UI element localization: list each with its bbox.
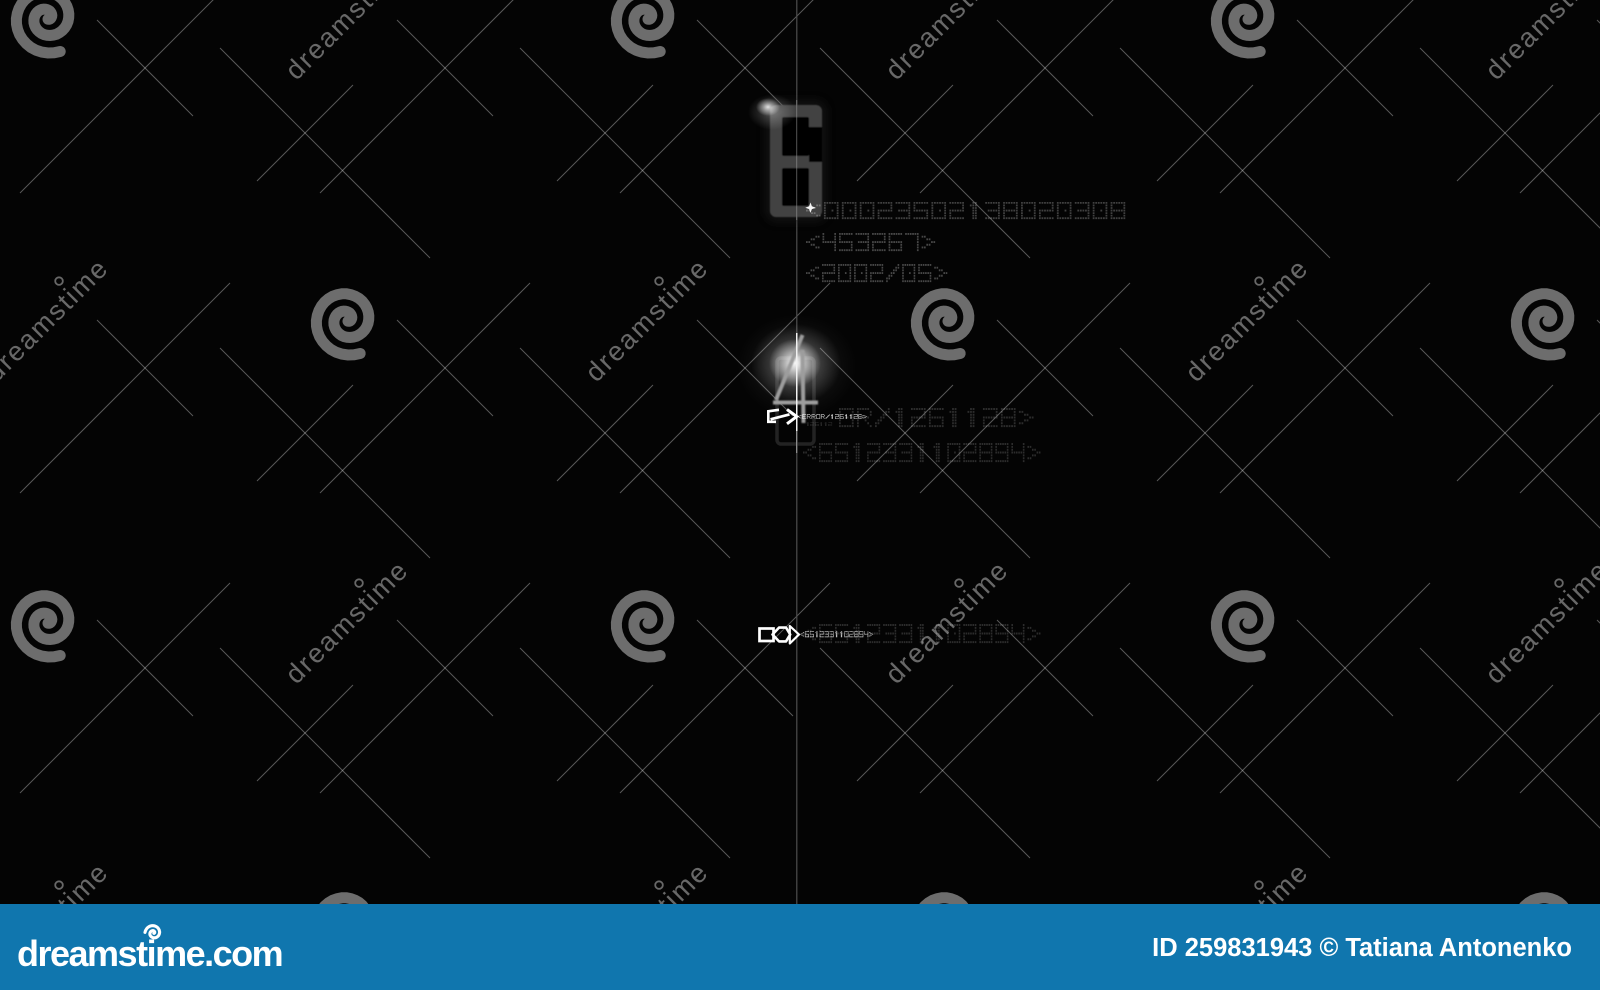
svg-text:dreamstime.com: dreamstime.com xyxy=(17,933,282,974)
svg-text:ID 259831943 © Tatiana Antonen: ID 259831943 © Tatiana Antonenko xyxy=(1152,934,1572,962)
